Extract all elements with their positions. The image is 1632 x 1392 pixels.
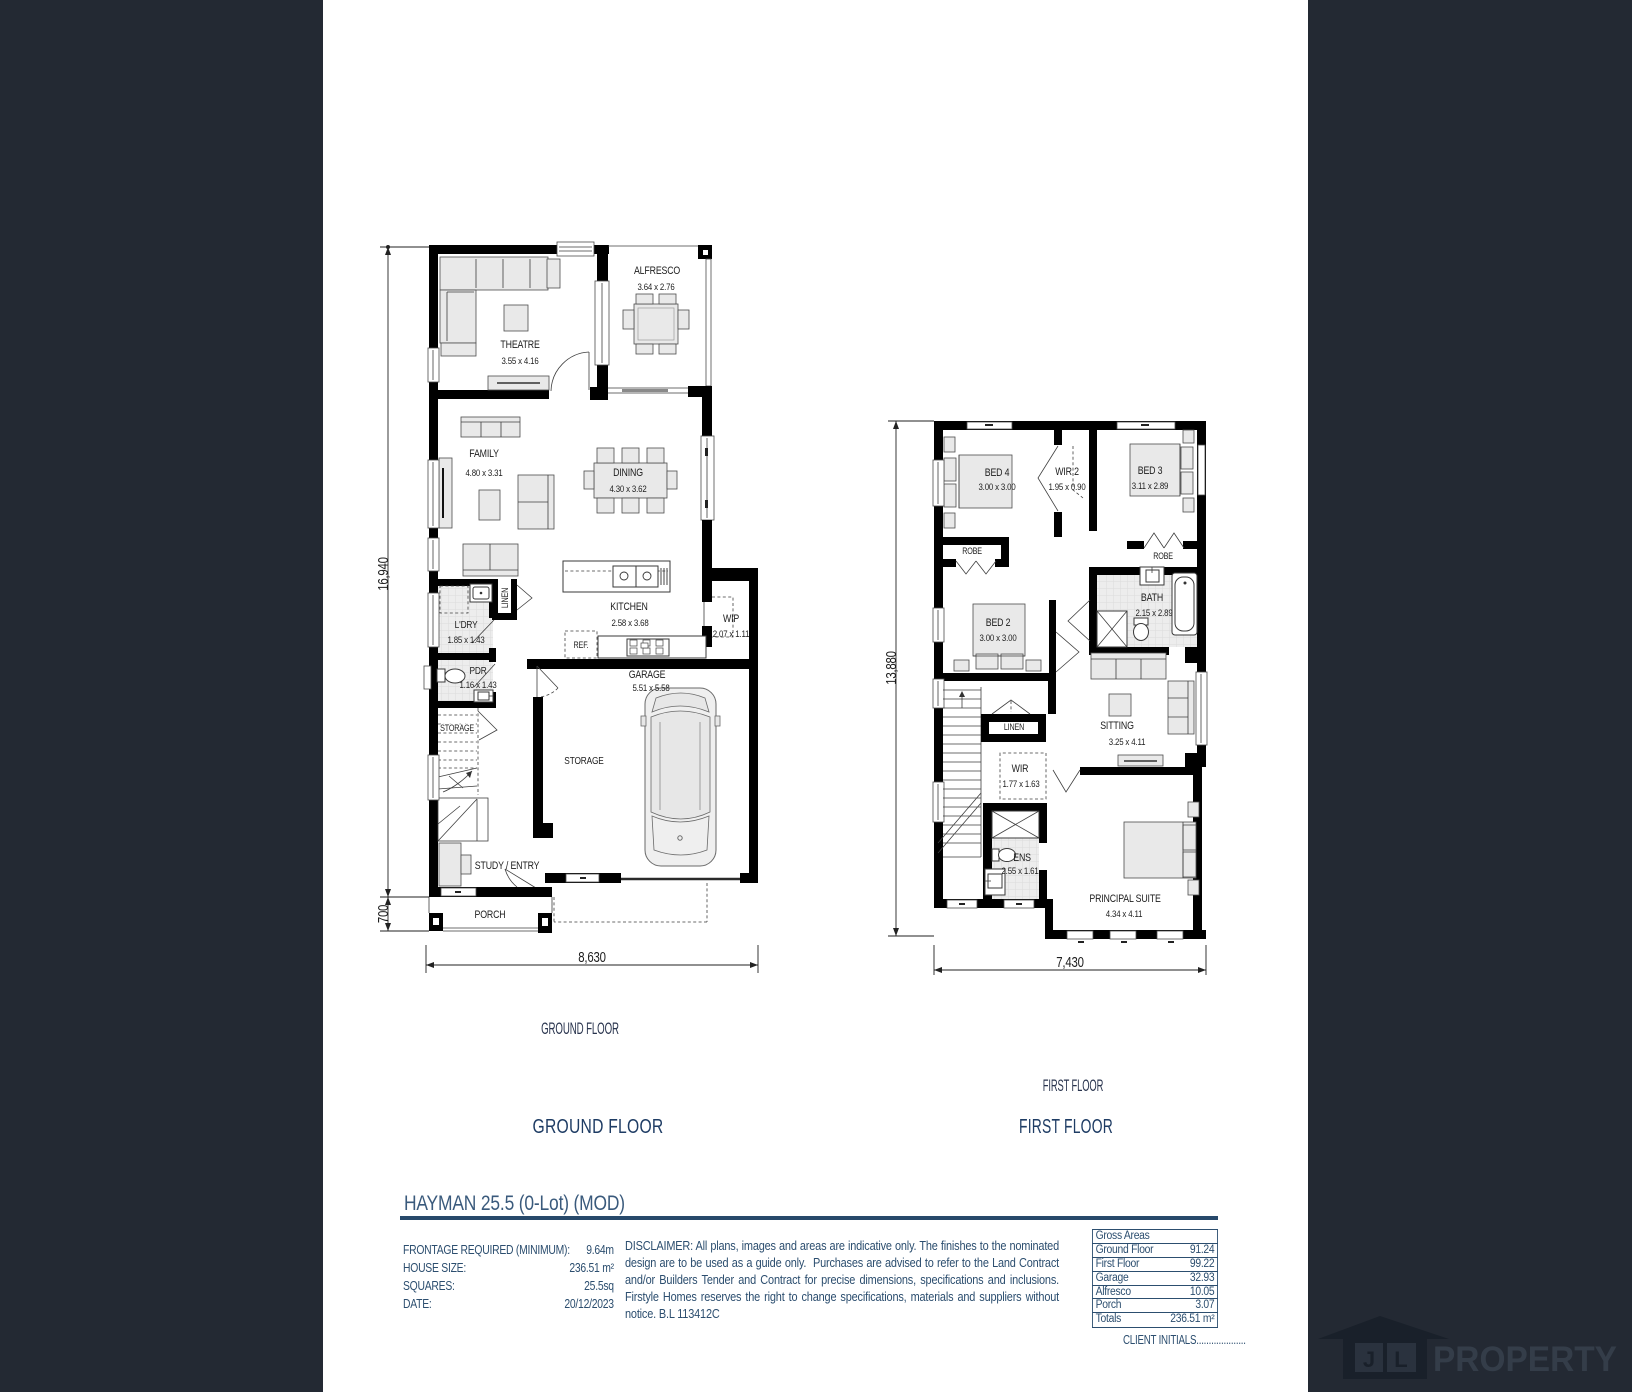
svg-text:LINEN: LINEN	[1004, 722, 1025, 732]
svg-text:FAMILY: FAMILY	[469, 448, 499, 460]
svg-text:PDR: PDR	[470, 664, 487, 676]
svg-text:ENS: ENS	[1013, 852, 1031, 864]
svg-text:3.55 x 4.16: 3.55 x 4.16	[501, 355, 538, 366]
svg-text:ALFRESCO: ALFRESCO	[634, 265, 681, 277]
svg-text:BED 2: BED 2	[986, 617, 1011, 629]
svg-text:THEATRE: THEATRE	[500, 339, 540, 351]
svg-text:3.00 x 3.00: 3.00 x 3.00	[979, 632, 1016, 643]
svg-text:DINING: DINING	[613, 467, 643, 479]
svg-text:PROPERTY: PROPERTY	[1433, 1340, 1617, 1379]
svg-text:2.07 x 1.11: 2.07 x 1.11	[713, 628, 750, 639]
svg-text:STUDY / ENTRY: STUDY / ENTRY	[475, 860, 540, 872]
svg-text:5.51 x 5.58: 5.51 x 5.58	[632, 682, 669, 693]
svg-text:BATH: BATH	[1141, 592, 1163, 604]
svg-text:LINEN: LINEN	[500, 587, 510, 608]
svg-text:7,430: 7,430	[1056, 953, 1083, 970]
svg-text:REF.: REF.	[574, 640, 589, 650]
svg-text:J: J	[1363, 1347, 1375, 1372]
svg-text:3.00 x 3.00: 3.00 x 3.00	[978, 481, 1015, 492]
svg-text:WIR: WIR	[1012, 763, 1029, 775]
svg-text:16,940: 16,940	[374, 557, 391, 590]
svg-text:PORCH: PORCH	[475, 909, 506, 921]
svg-text:2.58 x 3.68: 2.58 x 3.68	[611, 617, 648, 628]
svg-text:STORAGE: STORAGE	[440, 723, 475, 733]
svg-text:13,880: 13,880	[882, 651, 899, 684]
svg-text:1.77 x 1.63: 1.77 x 1.63	[1002, 778, 1039, 789]
svg-text:PRINCIPAL SUITE: PRINCIPAL SUITE	[1089, 893, 1161, 905]
svg-text:1.85 x 1.43: 1.85 x 1.43	[447, 634, 484, 645]
svg-text:ROBE: ROBE	[962, 546, 982, 556]
svg-text:3.25 x 4.11: 3.25 x 4.11	[1109, 736, 1146, 747]
svg-text:L: L	[1394, 1347, 1407, 1372]
svg-text:GARAGE: GARAGE	[629, 669, 666, 681]
svg-text:SITTING: SITTING	[1100, 720, 1134, 732]
svg-text:ROBE: ROBE	[1153, 551, 1173, 561]
svg-text:STORAGE: STORAGE	[564, 754, 603, 766]
svg-text:4.80 x 3.31: 4.80 x 3.31	[465, 467, 502, 478]
svg-text:4.30 x 3.62: 4.30 x 3.62	[609, 483, 646, 494]
svg-text:4.34 x 4.11: 4.34 x 4.11	[1106, 908, 1143, 919]
svg-text:1.95 x 0.90: 1.95 x 0.90	[1048, 481, 1085, 492]
svg-text:BED 3: BED 3	[1138, 465, 1163, 477]
svg-text:WIR 2: WIR 2	[1055, 466, 1079, 478]
svg-text:700: 700	[374, 905, 391, 923]
svg-text:2.15 x 2.89: 2.15 x 2.89	[1135, 607, 1172, 618]
svg-text:3.11 x 2.89: 3.11 x 2.89	[1132, 480, 1169, 491]
svg-text:2.55 x 1.61: 2.55 x 1.61	[1001, 865, 1038, 876]
svg-text:KITCHEN: KITCHEN	[610, 601, 647, 613]
svg-text:WIP: WIP	[723, 613, 740, 625]
svg-text:1.16 x 1.43: 1.16 x 1.43	[459, 679, 496, 690]
svg-text:L'DRY: L'DRY	[455, 618, 479, 630]
svg-text:8,630: 8,630	[578, 948, 605, 965]
svg-text:BED 4: BED 4	[985, 467, 1010, 479]
svg-text:3.64 x 2.76: 3.64 x 2.76	[637, 281, 674, 292]
